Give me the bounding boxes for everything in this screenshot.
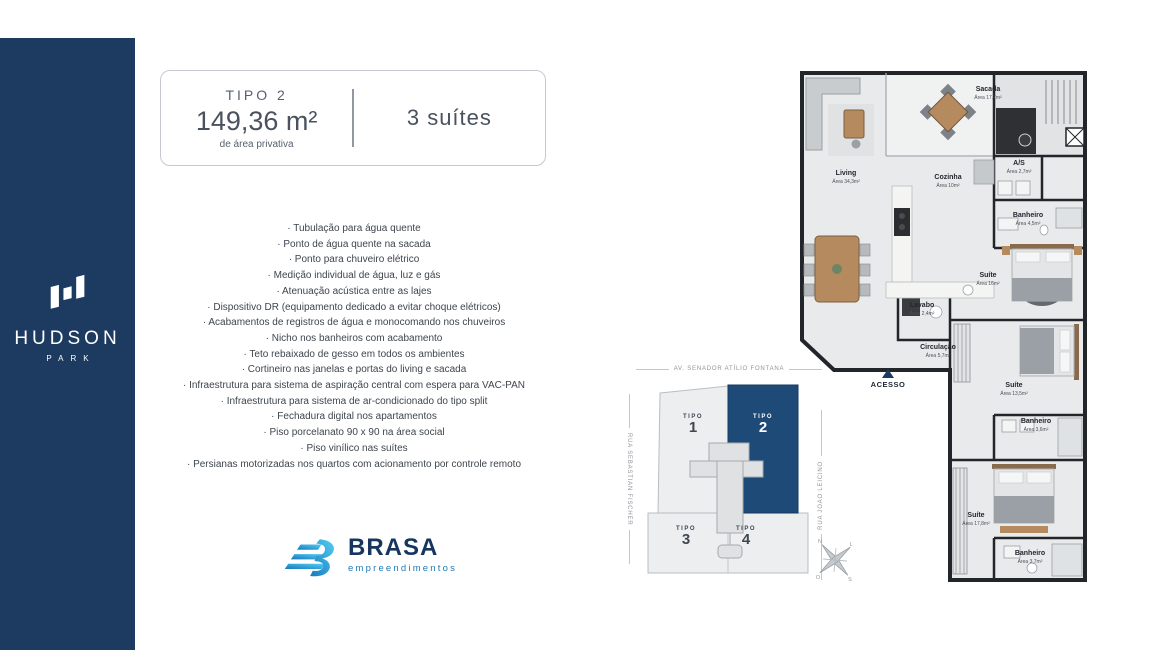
feature-item: · Nicho nos banheiros com acabamento xyxy=(158,331,550,347)
developer-tagline: empreendimentos xyxy=(348,563,457,574)
brand-name: HUDSON xyxy=(14,328,120,350)
feature-item: · Cortineiro nas janelas e portas do liv… xyxy=(158,362,550,378)
unit-area-caption: de área privativa xyxy=(220,139,294,150)
access-label: ACESSO xyxy=(860,380,916,389)
title-card-left: TIPO 2 149,36 m² de área privativa xyxy=(161,71,352,165)
brasa-logo: BRASA empreendimentos xyxy=(283,533,457,577)
unit-label-tipo2: TIPO 2 xyxy=(741,414,785,436)
feature-item: · Infraestrutura para sistema de aspiraç… xyxy=(158,378,550,394)
feature-item: · Medição individual de água, luz e gás xyxy=(158,268,550,284)
elevator xyxy=(1066,128,1084,146)
street-name-top: AV. SENADOR ATÍLIO FONTANA xyxy=(674,366,785,372)
feature-item: · Tubulação para água quente xyxy=(158,221,550,237)
hudson-logo-icon xyxy=(42,274,94,314)
developer-name: BRASA xyxy=(348,536,457,560)
hudson-park-logo: HUDSON PARK xyxy=(14,274,120,363)
feature-item: · Ponto de água quente na sacada xyxy=(158,237,550,253)
brand-subname: PARK xyxy=(14,354,120,363)
brasa-logo-icon xyxy=(283,533,339,577)
unit-label-tipo3: TIPO 3 xyxy=(664,526,708,548)
street-label-left: RUA SEBASTIAN FISCHER xyxy=(626,394,632,564)
feature-item: · Dispositivo DR (equipamento dedicado a… xyxy=(158,300,550,316)
access-arrow-icon xyxy=(882,369,894,378)
leader-line xyxy=(629,530,630,564)
dining-table xyxy=(804,236,870,302)
floor-plan-drawing xyxy=(798,68,1088,583)
feature-list: · Tubulação para água quente· Ponto de á… xyxy=(158,221,550,472)
leader-line xyxy=(629,394,630,428)
feature-item: · Atenuação acústica entre as lajes xyxy=(158,284,550,300)
suite1-bed xyxy=(1002,244,1082,306)
unit-label-tipo1: TIPO 1 xyxy=(671,414,715,436)
brasa-wordmark: BRASA empreendimentos xyxy=(348,536,457,574)
feature-item: · Persianas motorizadas nos quartos com … xyxy=(158,457,550,473)
leader-line xyxy=(636,369,669,370)
feature-item: · Acabamentos de registros de água e mon… xyxy=(158,315,550,331)
unit-label-tipo4: TIPO 4 xyxy=(724,526,768,548)
feature-item: · Ponto para chuveiro elétrico xyxy=(158,252,550,268)
floor-plan: SacadaÁrea 17,7m²LivingÁrea 34,3m²Cozinh… xyxy=(798,68,1088,583)
unit-type-label: TIPO 2 xyxy=(225,87,287,103)
street-label-top: AV. SENADOR ATÍLIO FONTANA xyxy=(636,366,822,372)
street-name-left: RUA SEBASTIAN FISCHER xyxy=(626,433,632,525)
feature-item: · Fechadura digital nos apartamentos xyxy=(158,409,550,425)
access-marker: ACESSO xyxy=(860,369,916,389)
feature-item: · Infraestrutura para sistema de ar-cond… xyxy=(158,394,550,410)
suites-label: 3 suítes xyxy=(407,105,492,131)
feature-item: · Piso porcelanato 90 x 90 na área socia… xyxy=(158,425,550,441)
bbq-counter xyxy=(996,108,1036,154)
unit-area-value: 149,36 m² xyxy=(196,106,318,137)
feature-item: · Teto rebaixado de gesso em todos os am… xyxy=(158,347,550,363)
feature-item: · Piso vinílico nas suítes xyxy=(158,441,550,457)
sidebar: HUDSON PARK xyxy=(0,38,135,650)
title-card: TIPO 2 149,36 m² de área privativa 3 suí… xyxy=(160,70,546,166)
title-card-right: 3 suítes xyxy=(354,71,545,165)
